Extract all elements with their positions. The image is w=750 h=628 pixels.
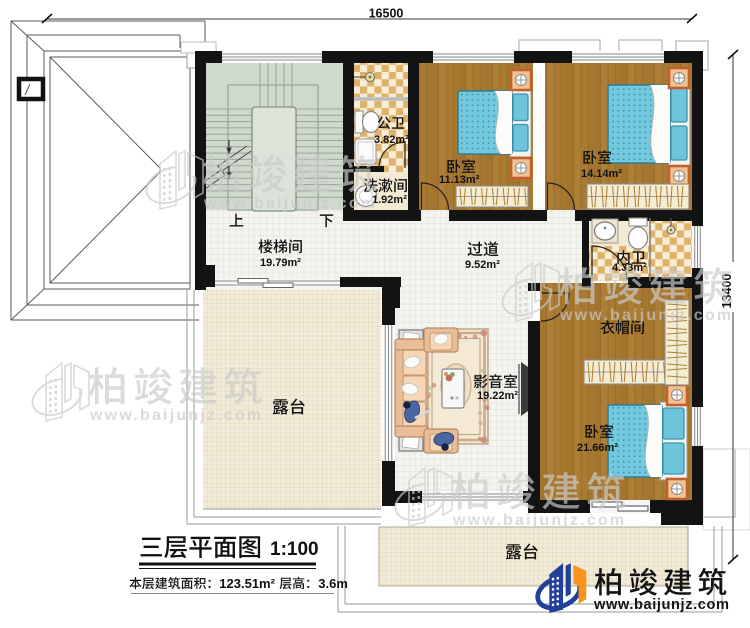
svg-text:3.82m²: 3.82m² bbox=[374, 134, 409, 146]
svg-text:3.6m: 3.6m bbox=[318, 576, 348, 591]
svg-text:www.baijunjz.com: www.baijunjz.com bbox=[559, 307, 733, 324]
svg-text:19.22m²: 19.22m² bbox=[477, 390, 518, 402]
svg-text:11.13m²: 11.13m² bbox=[439, 174, 480, 186]
svg-text:19.79m²: 19.79m² bbox=[260, 257, 301, 269]
svg-text:123.51m²: 123.51m² bbox=[219, 576, 275, 591]
svg-text:www.baijunjz.com: www.baijunjz.com bbox=[593, 597, 730, 613]
svg-text:www.baijunjz.com: www.baijunjz.com bbox=[89, 407, 263, 424]
svg-text:21.66m²: 21.66m² bbox=[577, 442, 618, 454]
svg-text:www.baijunjz.com: www.baijunjz.com bbox=[452, 512, 626, 529]
svg-text:16500: 16500 bbox=[369, 7, 404, 21]
svg-text:9.52m²: 9.52m² bbox=[465, 259, 500, 271]
svg-text:1:100: 1:100 bbox=[270, 539, 319, 560]
svg-text:14.14m²: 14.14m² bbox=[581, 168, 622, 180]
svg-text:www.baijunjz.com: www.baijunjz.com bbox=[203, 195, 377, 212]
